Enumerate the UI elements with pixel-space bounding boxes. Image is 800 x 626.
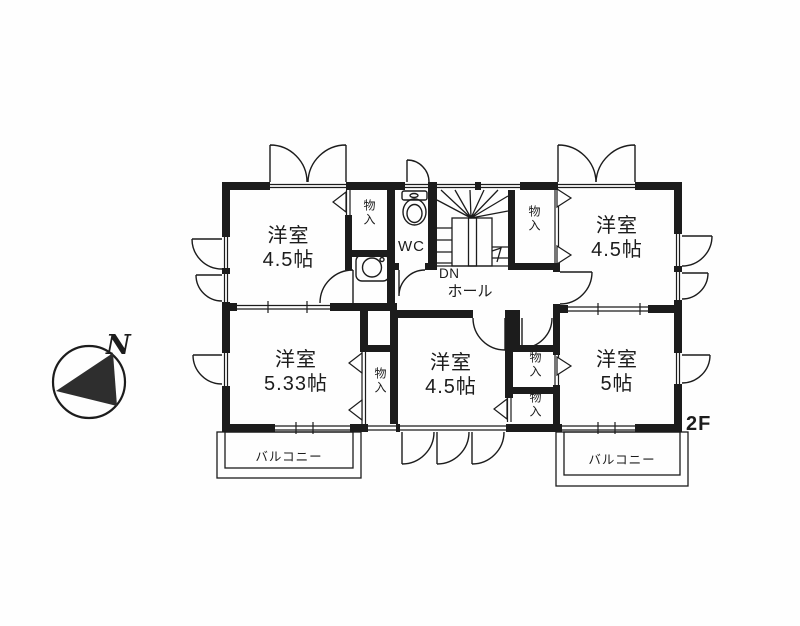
hall-label: ホール — [443, 280, 497, 301]
door-arcs — [192, 145, 712, 464]
room-label-top-left: 洋室 4.5帖 — [231, 224, 346, 272]
closet-label-3: 物入 — [528, 351, 542, 379]
stairs-direction-arrow — [492, 248, 501, 262]
room-label-bottom-right: 洋室 5帖 — [558, 348, 676, 396]
room-name: 洋室 — [275, 349, 317, 371]
room-size: 4.5帖 — [231, 248, 346, 272]
toilet-icon — [402, 191, 427, 225]
room-label-bottom-left: 洋室 5.33帖 — [230, 348, 362, 396]
closet-label-2: 物入 — [527, 205, 541, 233]
closet-label-4: 物入 — [373, 367, 387, 395]
room-size: 5.33帖 — [230, 372, 362, 396]
floor-plan-drawing — [0, 0, 800, 626]
room-name: 洋室 — [430, 352, 472, 374]
room-size: 4.5帖 — [558, 238, 676, 262]
stairs-down-label: DN — [439, 266, 460, 281]
washbasin-icon — [356, 255, 389, 281]
room-size: 5帖 — [558, 372, 676, 396]
room-label-bottom-middle: 洋室 4.5帖 — [396, 351, 506, 399]
wc-label: WC — [398, 238, 425, 255]
compass-north-label: N — [106, 330, 131, 361]
balcony-label-left: バルコニー — [227, 446, 351, 465]
staircase — [437, 190, 508, 266]
room-label-top-right: 洋室 4.5帖 — [558, 214, 676, 262]
floor-label: 2F — [686, 413, 711, 436]
room-name: 洋室 — [268, 225, 310, 247]
closet-label-1: 物入 — [362, 199, 376, 227]
closet-label-5: 物入 — [528, 391, 542, 419]
balcony-label-right: バルコニー — [560, 449, 684, 468]
room-name: 洋室 — [596, 215, 638, 237]
room-name: 洋室 — [596, 349, 638, 371]
floor-plan-page: 洋室 4.5帖 洋室 4.5帖 洋室 5.33帖 洋室 4.5帖 洋室 5帖 W… — [0, 0, 800, 626]
room-size: 4.5帖 — [396, 375, 506, 399]
